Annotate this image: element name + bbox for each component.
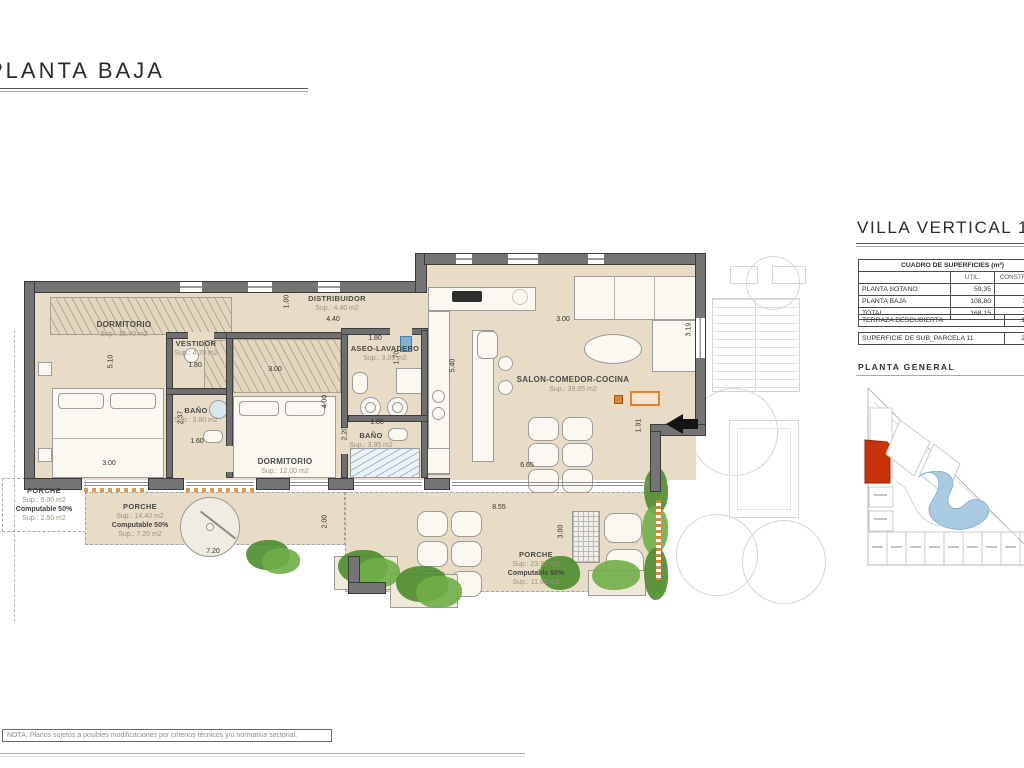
room-label-salon: SALON-COMEDOR-COCINA Sup.: 39.85 m2: [493, 375, 653, 394]
porch-comp-sup: Sup.: 11.95 m2: [476, 578, 596, 587]
wall-pillar: [328, 478, 354, 490]
plant: [592, 560, 640, 590]
dim-label: 3.00: [262, 366, 288, 373]
room-sup: Sup.: 4.70 m2: [156, 349, 236, 358]
stove-icon: [452, 291, 482, 302]
partition: [226, 332, 345, 339]
dim-label: 1.60: [184, 438, 210, 445]
room-sup: Sup.: 3.05 m2: [344, 354, 426, 363]
title-underline-2: [0, 91, 308, 92]
porch-name: PORCHE: [476, 550, 596, 560]
room-name: DISTRIBUIDOR: [277, 294, 397, 304]
pergola-inner: [737, 428, 791, 510]
toilet: [352, 372, 368, 394]
room-sup: Sup.: 4.40 m2: [277, 304, 397, 313]
sliding-door: [186, 485, 254, 486]
parasol-hub: [206, 523, 214, 531]
site-plan-underline: [856, 375, 1024, 376]
villa-title-underline-2: [856, 246, 1024, 247]
room-label-vestidor: VESTIDOR Sup.: 4.70 m2: [156, 339, 236, 358]
dim-label: 2.00: [322, 509, 329, 535]
porch-computable: Computable 50%: [2, 505, 86, 514]
dining-chair: [528, 469, 559, 493]
door-opening: [390, 328, 412, 335]
dim-label: 5.40: [450, 353, 457, 379]
sofa: [574, 276, 696, 320]
porch-name: PORCHE: [90, 502, 190, 512]
terraza-label: TERRAZA DESCUBIERTA: [859, 315, 1004, 326]
dining-chair: [562, 443, 593, 467]
room-name: DORMITORIO: [64, 320, 184, 330]
room-name: VESTIDOR: [156, 339, 236, 349]
sliding-door: [452, 482, 648, 483]
parcela-label: SUPERFICIE DE SUB_PARCELA 11: [859, 333, 1004, 344]
threshold-orange: [186, 488, 254, 492]
dim-label: 5.10: [108, 349, 115, 375]
armchair: [477, 331, 498, 359]
room-name: DORMITORIO: [225, 457, 345, 467]
row-label: PLANTA SOTANO: [859, 284, 951, 296]
room-label-distribuidor: DISTRIBUIDOR Sup.: 4.40 m2: [277, 294, 397, 313]
dim-label: 3.19: [686, 317, 693, 343]
plant: [262, 548, 300, 574]
dim-label: 1.91: [636, 413, 643, 439]
porch-computable: Computable 50%: [476, 569, 596, 578]
villa-title-underline: [856, 243, 1024, 244]
sliding-door: [354, 485, 422, 486]
outdoor-chair: [417, 541, 448, 567]
porch-sup: Sup.: 23.90 m2: [476, 560, 596, 569]
dim-label: 6.65: [514, 462, 540, 469]
dim-label: 4.00: [322, 389, 329, 415]
porch-label-left: PORCHE Sup.: 5.00 m2 Computable 50% Sup.…: [2, 486, 86, 523]
parcela-row: SUPERFICIE DE SUB_PARCELA 11 281,95: [858, 332, 1024, 345]
highlighted-plot: [865, 440, 890, 483]
dim-label: 1.00: [284, 289, 291, 315]
window: [508, 254, 538, 264]
wall-segment: [650, 431, 661, 492]
site-plot: [869, 487, 893, 507]
col-util: UTIL.: [951, 272, 995, 284]
pillow: [110, 393, 156, 409]
footer-line-2: [0, 756, 525, 757]
row-construida: 64,50: [995, 284, 1024, 296]
tree-circle: [746, 256, 800, 310]
dim-label: 1.80: [182, 362, 208, 369]
wall-segment: [24, 281, 426, 293]
sheet-title: PLANTA BAJA: [0, 58, 165, 84]
surfaces-table: CUADRO DE SUPERFICIES (m²) UTIL. CONSTRU…: [858, 259, 1024, 320]
porch-label-main: PORCHE Sup.: 23.90 m2 Computable 50% Sup…: [476, 550, 596, 587]
porch-comp-sup: Sup.: 2.50 m2: [2, 514, 86, 523]
window: [588, 254, 604, 264]
fridge: [426, 448, 450, 474]
plant: [416, 576, 462, 608]
entry-arrow-tail: [683, 419, 698, 429]
window: [248, 282, 272, 292]
dining-chair: [528, 417, 559, 441]
dim-label: 2.20: [342, 421, 349, 447]
sofa-cushion-line: [614, 276, 615, 320]
bed-fold-line: [52, 438, 164, 439]
entry-arrow-icon: [666, 414, 683, 434]
wall-pillar: [424, 478, 450, 490]
dim-label: 8.55: [486, 504, 512, 511]
room-sup: Sup.: 3.80 m2: [158, 416, 234, 425]
stairs-center-line: [755, 298, 756, 392]
dim-label: 2.37: [178, 405, 185, 431]
table-title: CUADRO DE SUPERFICIES (m²): [859, 260, 1024, 272]
plots-row-separators: [887, 532, 1020, 565]
sliding-door: [84, 482, 148, 483]
row-util: 59,35: [951, 284, 995, 296]
window: [318, 282, 340, 292]
room-label-dormitorio-1: DORMITORIO Sup.: 15.40 m2: [64, 320, 184, 339]
terraza-value: 124,40: [1004, 315, 1024, 326]
title-underline: [0, 88, 308, 89]
nightstand: [38, 448, 52, 462]
plant: [642, 506, 668, 554]
washer-drum: [365, 402, 376, 413]
wall-column-L: [348, 582, 386, 594]
sliding-door: [452, 485, 648, 486]
dim-label: 3.00: [550, 316, 576, 323]
orange-edge-strip: [656, 500, 661, 580]
porch-label-mid: PORCHE Sup.: 14.40 m2 Computable 50% Sup…: [90, 502, 190, 539]
site-plan-title: PLANTA GENERAL: [858, 362, 955, 372]
sliding-door: [84, 485, 148, 486]
washer-drum: [392, 402, 403, 413]
room-sup: Sup.: 12.00 m2: [225, 467, 345, 476]
sliding-door: [290, 485, 328, 486]
window: [180, 282, 202, 292]
dim-label: 1.80: [362, 335, 388, 342]
counter: [396, 368, 424, 394]
sink: [432, 407, 445, 420]
door-opening: [188, 332, 214, 339]
note-box: NOTA: Planos sujetos a posibles modifica…: [2, 729, 332, 742]
partition: [166, 388, 232, 395]
pillow: [239, 401, 279, 416]
site-plan: [856, 380, 1024, 572]
partition: [341, 328, 428, 335]
sofa-cushion-line: [654, 276, 655, 320]
row-util: 108,80: [951, 296, 995, 308]
sink: [432, 390, 445, 403]
room-label-aseo-lavadero: ASEO-LAVADERO Sup.: 3.05 m2: [344, 344, 426, 363]
exterior-stairs: [712, 298, 800, 392]
terraza-row: TERRAZA DESCUBIERTA 124,40: [858, 314, 1024, 327]
row-label: PLANTA BAJA: [859, 296, 951, 308]
nightstand: [38, 362, 52, 376]
plot-label-mark: [874, 518, 887, 520]
parcel-dashed-line: [14, 330, 15, 622]
drawing-sheet: PLANTA BAJA: [0, 0, 1024, 768]
outdoor-chair: [451, 511, 482, 537]
wall-pillar: [148, 478, 184, 490]
window: [696, 318, 705, 358]
col-construida: CONSTRUIDA: [995, 272, 1024, 284]
dim-label: 3.00: [558, 519, 565, 545]
dim-label: 1.70: [394, 345, 401, 371]
shower-hatch: [350, 448, 420, 478]
porch-computable: Computable 50%: [90, 521, 190, 530]
room-name: BAÑO: [158, 406, 234, 416]
dim-label: 7.20: [200, 548, 226, 555]
stool: [498, 356, 513, 371]
orange-marker: [614, 395, 623, 404]
dining-chair: [562, 417, 593, 441]
window: [456, 254, 472, 264]
wall-segment: [24, 281, 35, 490]
parcela-value: 281,95: [1004, 333, 1024, 344]
porch-sup: Sup.: 14.40 m2: [90, 512, 190, 521]
porch-comp-sup: Sup.: 7.20 m2: [90, 530, 190, 539]
lounge-chair: [604, 513, 642, 543]
room-sup: Sup.: 39.85 m2: [493, 385, 653, 394]
sliding-door: [354, 482, 422, 483]
site-plot: [869, 511, 893, 531]
villa-title: VILLA VERTICAL 11: [857, 218, 1024, 238]
porch-name: PORCHE: [2, 486, 86, 496]
table-cell: [859, 272, 951, 284]
dim-label: 4.40: [320, 316, 346, 323]
dim-label: 1.80: [364, 419, 390, 426]
threshold-orange: [84, 488, 148, 492]
plot-label-mark: [874, 494, 887, 496]
pillow: [58, 393, 104, 409]
room-label-bano-1: BAÑO Sup.: 3.80 m2: [158, 406, 234, 425]
porch-sup: Sup.: 5.00 m2: [2, 496, 86, 505]
dining-chair: [562, 469, 593, 493]
room-label-dormitorio-2: DORMITORIO Sup.: 12.00 m2: [225, 457, 345, 476]
wall-pillar: [256, 478, 290, 490]
row-construida: 124,85: [995, 296, 1024, 308]
sliding-door: [186, 482, 254, 483]
room-name: ASEO-LAVADERO: [344, 344, 426, 354]
pillow: [285, 401, 325, 416]
footer-line: [0, 753, 525, 754]
sliding-door: [290, 482, 328, 483]
tree-circle: [742, 520, 826, 604]
dim-label: 3.00: [96, 460, 122, 467]
room-name: SALON-COMEDOR-COCINA: [493, 375, 653, 385]
coffee-table: [584, 334, 642, 364]
ceiling-light: [512, 289, 528, 305]
outdoor-chair: [417, 511, 448, 537]
